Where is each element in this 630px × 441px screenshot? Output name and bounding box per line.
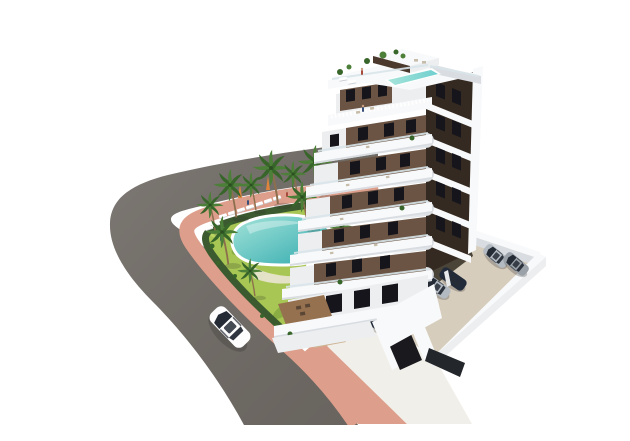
scene-svg (40, 16, 630, 425)
facade-right (426, 66, 483, 274)
person-on-terrace (362, 105, 364, 112)
person-on-roof (361, 68, 363, 75)
render-image (40, 16, 630, 425)
